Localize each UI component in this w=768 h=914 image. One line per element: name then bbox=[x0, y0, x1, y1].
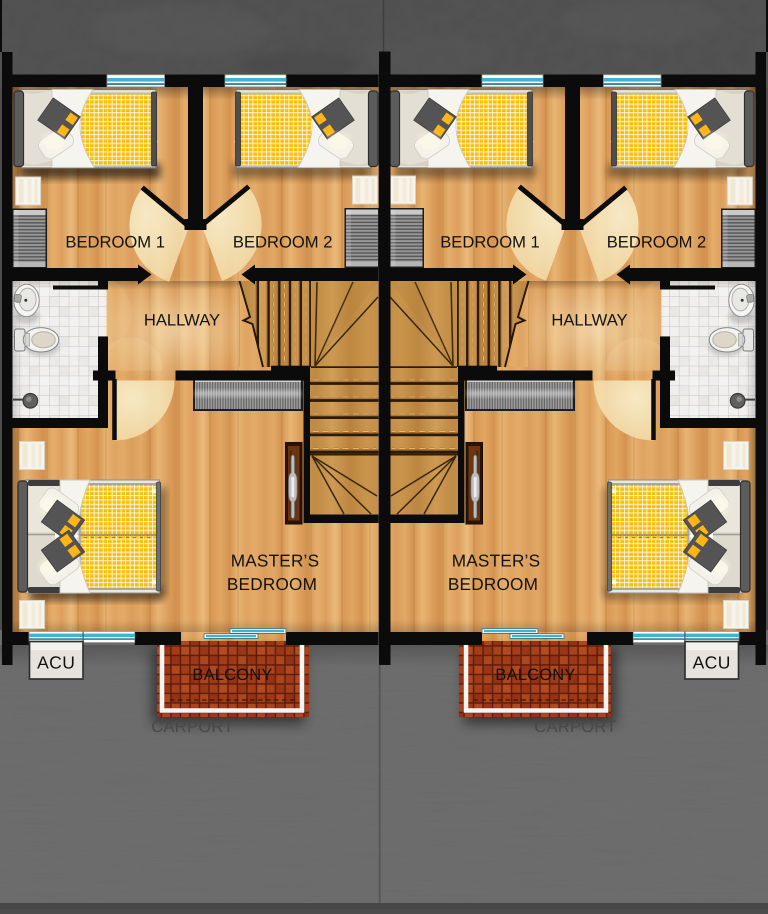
svg-text:CARPORT: CARPORT bbox=[151, 718, 233, 736]
svg-text:BALCONY: BALCONY bbox=[495, 666, 575, 684]
svg-text:BALCONY: BALCONY bbox=[192, 666, 272, 684]
svg-text:ACU: ACU bbox=[693, 653, 731, 673]
svg-text:BEDROOM 1: BEDROOM 1 bbox=[65, 233, 165, 252]
svg-text:ACU: ACU bbox=[37, 653, 75, 673]
svg-text:BEDROOM 2: BEDROOM 2 bbox=[607, 233, 707, 252]
svg-text:HALLWAY: HALLWAY bbox=[144, 311, 220, 330]
svg-text:BEDROOM: BEDROOM bbox=[227, 574, 317, 594]
svg-text:BEDROOM: BEDROOM bbox=[448, 574, 538, 594]
svg-text:CARPORT: CARPORT bbox=[534, 718, 616, 736]
svg-text:MASTER’S: MASTER’S bbox=[231, 551, 320, 571]
svg-text:HALLWAY: HALLWAY bbox=[551, 311, 627, 330]
svg-text:BEDROOM 1: BEDROOM 1 bbox=[440, 233, 540, 252]
svg-text:BEDROOM 2: BEDROOM 2 bbox=[233, 233, 333, 252]
svg-text:MASTER’S: MASTER’S bbox=[452, 551, 541, 571]
